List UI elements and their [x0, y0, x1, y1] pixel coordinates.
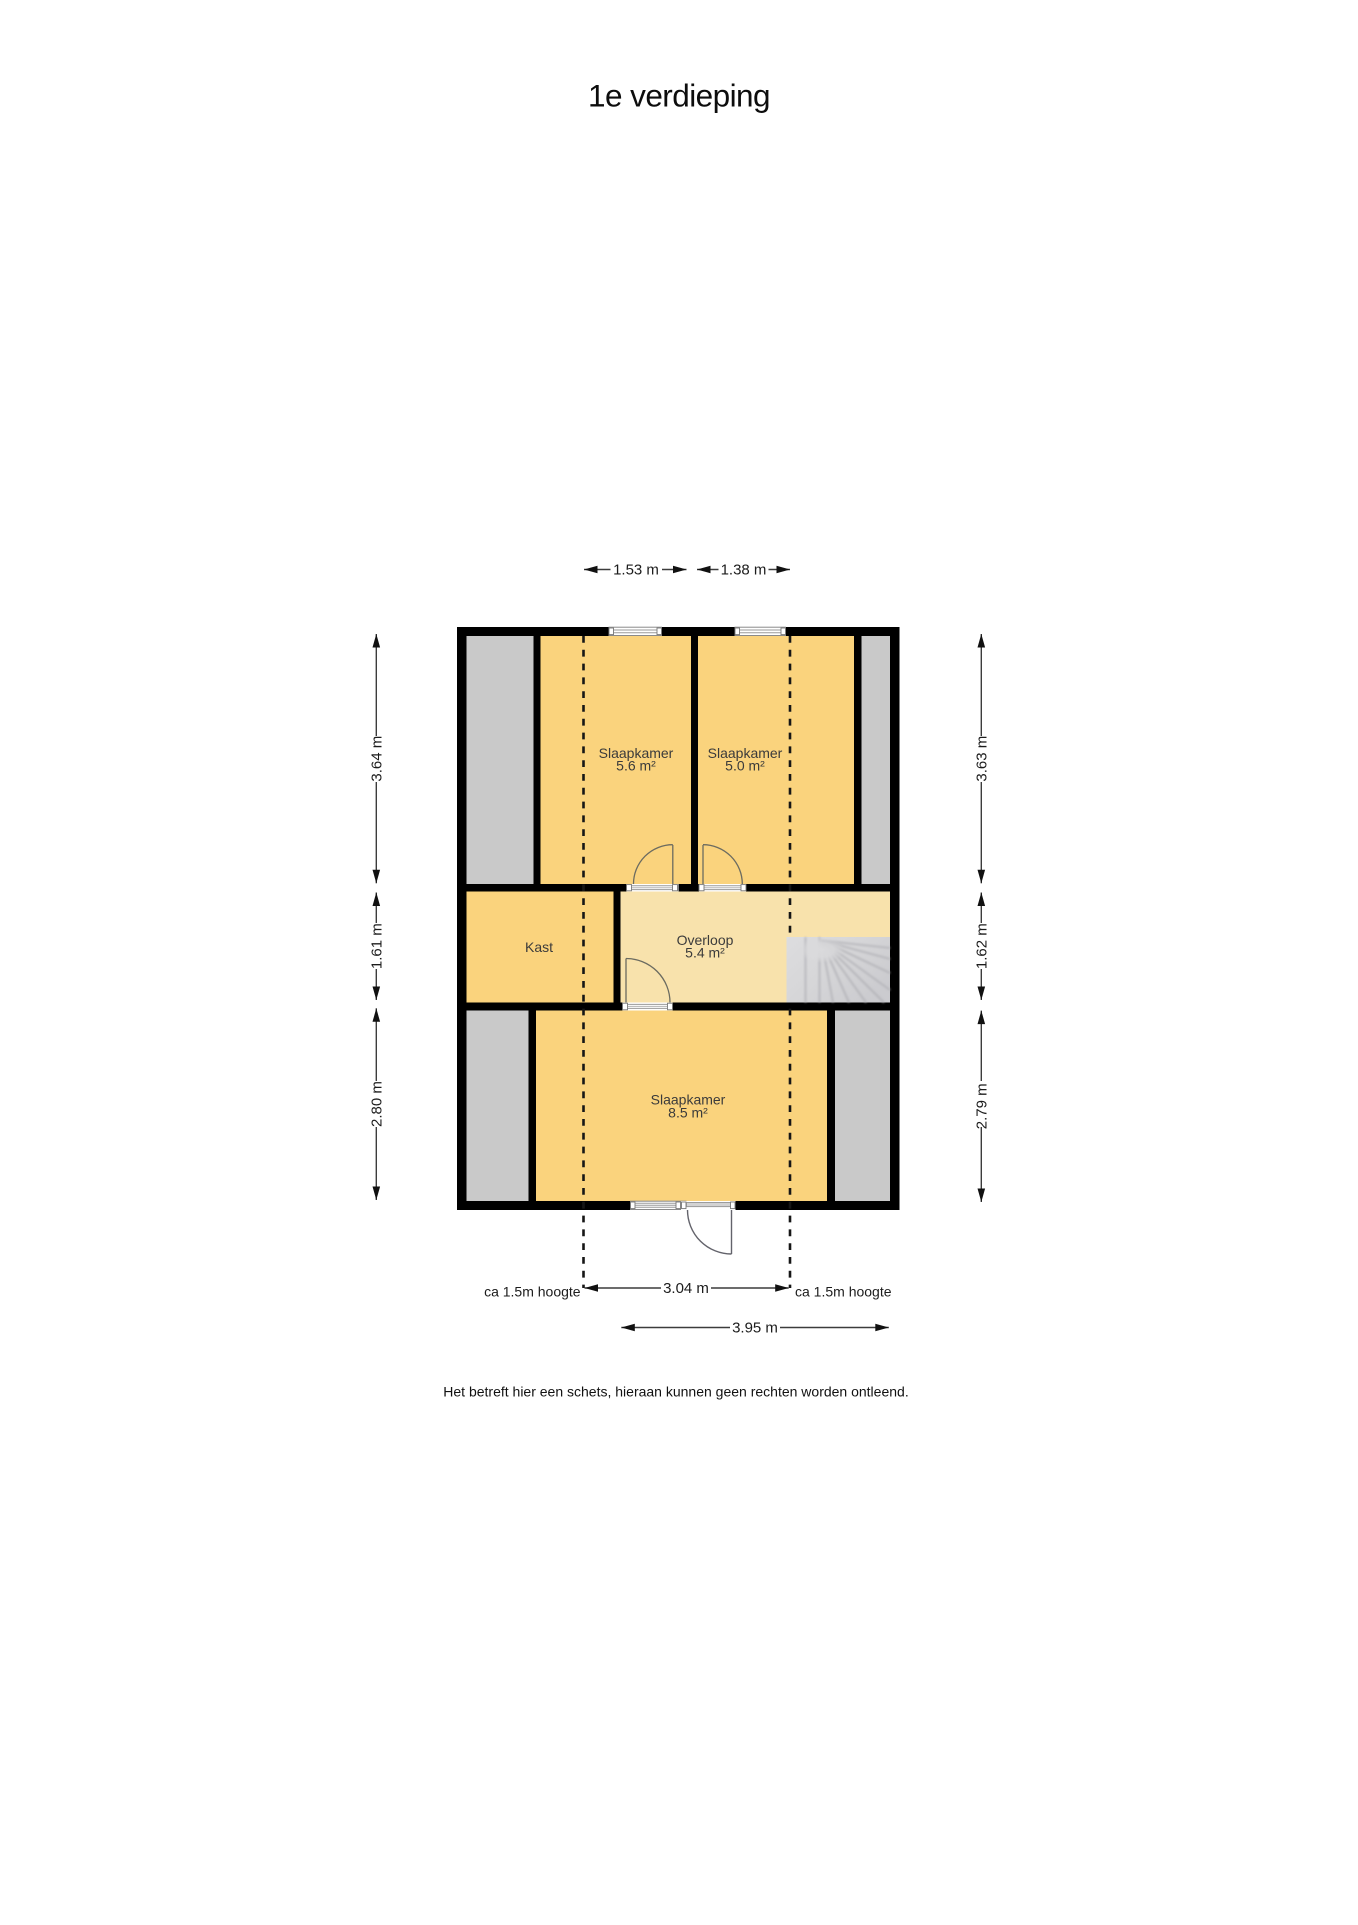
svg-text:1.53 m: 1.53 m [613, 562, 659, 579]
svg-text:1.38 m: 1.38 m [721, 562, 767, 579]
svg-text:2.80 m: 2.80 m [368, 1081, 385, 1127]
svg-text:3.95 m: 3.95 m [732, 1320, 778, 1337]
svg-text:3.63 m: 3.63 m [973, 736, 990, 782]
svg-text:5.6 m²: 5.6 m² [616, 758, 656, 774]
svg-text:5.4 m²: 5.4 m² [685, 945, 725, 961]
svg-text:1.61 m: 1.61 m [368, 923, 385, 969]
svg-text:ca 1.5m hoogte: ca 1.5m hoogte [484, 1284, 581, 1300]
svg-text:Kast: Kast [525, 939, 553, 955]
svg-text:1e verdieping: 1e verdieping [588, 78, 770, 114]
svg-text:3.64 m: 3.64 m [368, 736, 385, 782]
svg-text:Het betreft hier een schets, h: Het betreft hier een schets, hieraan kun… [443, 1384, 908, 1400]
svg-text:3.04 m: 3.04 m [663, 1280, 709, 1297]
svg-text:2.79 m: 2.79 m [973, 1083, 990, 1129]
svg-text:ca 1.5m hoogte: ca 1.5m hoogte [795, 1284, 892, 1300]
svg-text:8.5 m²: 8.5 m² [668, 1105, 708, 1121]
svg-text:1.62 m: 1.62 m [973, 923, 990, 969]
svg-text:5.0 m²: 5.0 m² [725, 758, 765, 774]
